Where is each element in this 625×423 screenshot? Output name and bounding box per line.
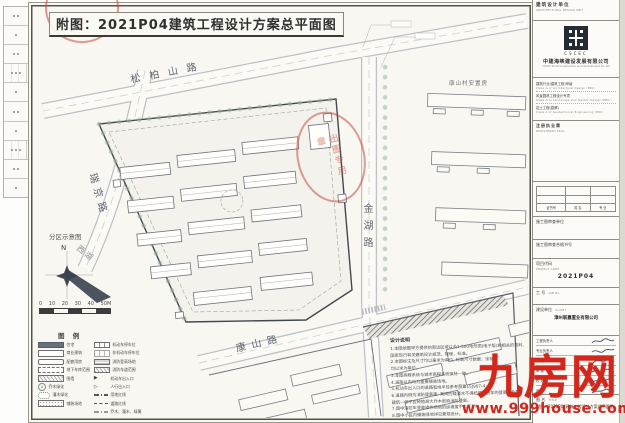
legend-item: 道路红线 xyxy=(94,401,142,407)
company-section: CSCEC 中建海峡建设发展有限公司 CSCEC Strait Construc… xyxy=(533,21,619,78)
swatch-greenery-line xyxy=(94,411,108,413)
strip-cell xyxy=(4,122,28,141)
swatch-red-line xyxy=(94,394,108,396)
legend-item: 住宅 xyxy=(38,342,90,348)
swatch-wall xyxy=(38,375,64,382)
swatch-tree xyxy=(38,383,46,391)
legend: 图 例 住宅 商业建筑 配套用房 地下车库范围 围墙 乔木绿化 灌木绿化 铺装场… xyxy=(38,330,166,415)
strip-cell xyxy=(4,83,28,102)
scanned-drawing-page: ★ 出图专用章 松柏山路 瑞京路 金湖路 康山路 康山村安置房 西湖 N 分区示… xyxy=(0,0,625,423)
certificates-section: 建筑行业(建筑工程)甲级Class A of Architectural Des… xyxy=(533,78,619,121)
registered-seal-section: 注册执业章 REGISTERED SEAL xyxy=(533,121,619,182)
drawing-sheet: ★ 出图专用章 松柏山路 瑞京路 金湖路 康山路 康山村安置房 西湖 N 分区示… xyxy=(28,2,534,423)
strip-cell xyxy=(4,160,28,179)
swatch-paving xyxy=(38,400,64,407)
legend-col-left: 住宅 商业建筑 配套用房 地下车库范围 围墙 乔木绿化 灌木绿化 铺装场地 xyxy=(38,342,90,415)
road-label-jinhu: 金湖路 xyxy=(359,203,374,254)
review-unit-label: 施工图审查单位 xyxy=(536,219,564,224)
legend-item: 灌木绿化 xyxy=(38,392,90,398)
legend-item: 乔木绿化 xyxy=(38,384,90,390)
company-name-en: CSCEC Strait Construction and Developmen… xyxy=(536,65,616,68)
legend-item: 机动车停车位 xyxy=(94,342,142,348)
job-no-label: 工 号 xyxy=(536,290,545,295)
label-north-mark: N xyxy=(61,244,66,252)
registration-table: 证书号 姓 名 专 业 xyxy=(536,186,616,212)
legend-item: 铺装场地 xyxy=(38,401,90,407)
neighbor-buildings-southwest xyxy=(236,361,363,418)
client-section: 建设单位 CLIENT 漳州联嘉置业有限公司 xyxy=(533,305,619,336)
signoff-row: 工程负责人 xyxy=(536,336,616,346)
legend-item: 地下车库范围 xyxy=(38,367,90,373)
registration-table-section: 证书号 姓 名 专 业 xyxy=(533,182,619,217)
strip-cell xyxy=(4,26,28,45)
cscec-logo xyxy=(564,26,588,50)
legend-item: 消防车道范围 xyxy=(94,367,142,373)
legend-col-right: 机动车停车位 非机动车停车位 消防登高场地 消防车道范围 ▶机动车出入口 ▷人行… xyxy=(94,342,142,415)
strip-cell xyxy=(4,141,28,160)
certificate-row: 建筑行业(建筑工程)甲级Class A of Architectural Des… xyxy=(536,80,616,92)
strip-cell xyxy=(4,7,28,26)
legend-item: ▷人行出入口 xyxy=(94,384,142,390)
swatch-residential xyxy=(38,342,64,349)
vehicle-entry-icon: ▶ xyxy=(94,376,108,381)
certificate-row: 岩土工程(勘察)Class A of Geotechnical Engineer… xyxy=(536,104,616,115)
legend-item: 乔木、灌木、绿篱 xyxy=(94,409,142,415)
label-neighbor-village: 康山村安置房 xyxy=(449,79,488,87)
swatch-parking xyxy=(94,342,110,349)
regtab-header: 专 业 xyxy=(591,203,615,211)
legend-item: 非机动车停车位 xyxy=(94,350,142,356)
swatch-shrub xyxy=(38,392,50,399)
strip-cell xyxy=(4,45,28,64)
job-no-section: 工 号 JOB No. xyxy=(533,288,619,305)
regtab-header: 证书号 xyxy=(537,203,566,211)
review-no-section: 施工图审查合格书号 xyxy=(533,240,619,259)
page-title: 附图：2021P04建筑工程设计方案总平面图 xyxy=(49,12,344,37)
project-code-value: 2021P04 xyxy=(536,273,616,280)
scale-bar-ticks: 0 10 20 30 40 50M xyxy=(39,301,111,307)
regtab-header: 姓 名 xyxy=(566,203,590,211)
signoff-strip xyxy=(3,6,29,198)
swatch-ancillary xyxy=(38,359,64,366)
zoning-sketch-caption: 分区示意图 xyxy=(49,231,82,241)
legend-item: 商业建筑 xyxy=(38,350,90,356)
pedestrian-entry-icon: ▷ xyxy=(94,385,108,390)
swatch-fire-area xyxy=(94,359,110,366)
swatch-commercial xyxy=(38,350,64,357)
legend-item: ▶机动车出入口 xyxy=(94,376,142,382)
registered-seal-label: 注册执业章 xyxy=(536,123,561,128)
swatch-basement xyxy=(38,367,64,374)
client-name: 漳州联嘉置业有限公司 xyxy=(536,315,616,321)
legend-item: 用地红线 xyxy=(94,392,142,398)
watermark: 九房网 www.999house.com xyxy=(462,354,625,417)
client-label: 建设单位 xyxy=(536,307,552,312)
swatch-road-line xyxy=(94,403,108,404)
legend-item: 消防登高场地 xyxy=(94,359,142,365)
review-unit-section: 施工图审查单位 xyxy=(533,217,619,240)
design-unit-section: 建筑设计单位 ARCHITECTURAL DESIGN UNIT xyxy=(533,0,619,21)
legend-title: 图 例 xyxy=(58,330,166,340)
scale-bar: 0 10 20 30 40 50M xyxy=(39,301,111,314)
scale-bar-graphic xyxy=(39,308,111,314)
legend-item: 配套用房 xyxy=(38,359,90,365)
company-name: 中建海峡建设发展有限公司 xyxy=(536,58,616,65)
swatch-bike-parking xyxy=(94,350,110,357)
certificate-row: 风景园林工程设计专项Class A of Landscape and Garde… xyxy=(536,92,616,104)
signature-scribble xyxy=(590,337,616,345)
project-code-label: 项目代码 xyxy=(536,261,552,266)
cscec-logo-word: CSCEC xyxy=(536,51,616,56)
neighbor-buildings-east xyxy=(422,93,529,278)
review-no-label: 施工图审查合格书号 xyxy=(536,242,572,247)
stamp-text: 出图专用章 xyxy=(313,133,349,182)
strip-cell xyxy=(4,64,28,83)
legend-item: 围墙 xyxy=(38,376,90,382)
compass xyxy=(45,251,111,303)
swatch-fire-lane xyxy=(94,367,110,374)
project-code-section: 项目代码 PROJECT CODE 2021P04 xyxy=(533,259,619,288)
strip-cell xyxy=(4,179,28,197)
strip-cell xyxy=(4,102,28,121)
watermark-brand: 九房网 xyxy=(462,354,625,401)
